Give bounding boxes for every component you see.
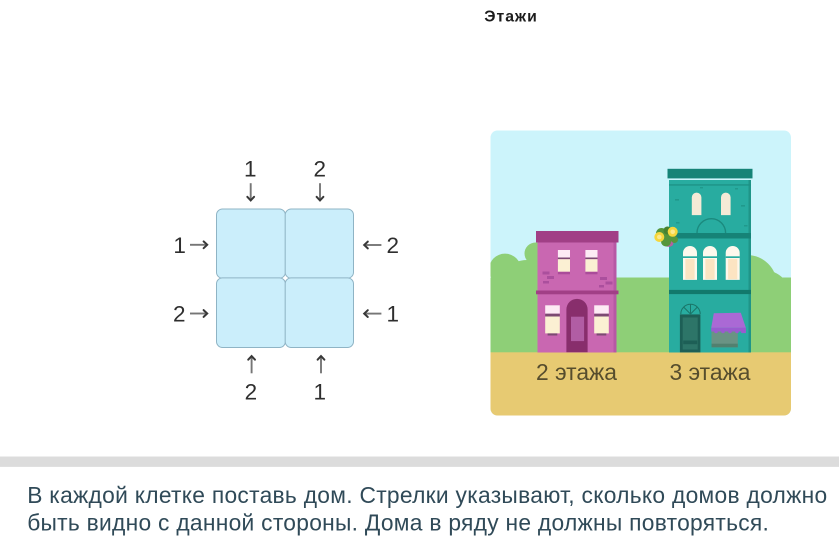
svg-text:3 этажа: 3 этажа — [670, 359, 751, 385]
svg-text:2: 2 — [314, 156, 327, 181]
svg-text:В каждой клетке поставь дом. С: В каждой клетке поставь дом. Стрелки ука… — [27, 482, 827, 508]
svg-text:Этажи: Этажи — [484, 8, 537, 25]
svg-text:1: 1 — [173, 233, 186, 258]
svg-text:1: 1 — [314, 379, 327, 404]
svg-text:1: 1 — [387, 302, 400, 327]
svg-text:быть видно с данной стороны. Д: быть видно с данной стороны. Дома в ряду… — [27, 510, 769, 536]
svg-text:2 этажа: 2 этажа — [536, 359, 617, 385]
svg-text:2: 2 — [173, 302, 186, 327]
svg-text:2: 2 — [387, 233, 400, 258]
svg-text:2: 2 — [245, 379, 258, 404]
svg-text:1: 1 — [244, 156, 257, 181]
